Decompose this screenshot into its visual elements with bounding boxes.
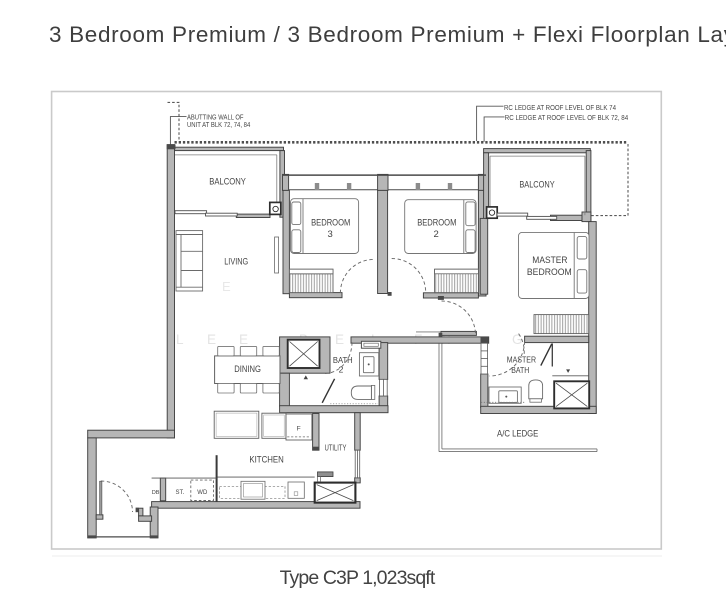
svg-text:MASTER: MASTER — [532, 255, 567, 266]
svg-text:BATH: BATH — [511, 365, 529, 375]
svg-text:E: E — [335, 332, 344, 347]
svg-text:2: 2 — [339, 365, 344, 375]
svg-text:WD: WD — [197, 490, 208, 496]
svg-text:L: L — [176, 332, 184, 347]
svg-text:F: F — [297, 425, 301, 432]
svg-text:BEDROOM: BEDROOM — [527, 267, 572, 278]
svg-text:LIVING: LIVING — [224, 256, 248, 267]
svg-text:UTILITY: UTILITY — [325, 443, 347, 453]
svg-text:E: E — [239, 332, 248, 347]
svg-text:BALCONY: BALCONY — [519, 179, 555, 190]
svg-text:MASTER: MASTER — [507, 354, 536, 364]
svg-text:E: E — [222, 279, 231, 294]
svg-text:BEDROOM: BEDROOM — [417, 218, 456, 229]
svg-text:KITCHEN: KITCHEN — [249, 454, 284, 465]
svg-text:RC LEDGE AT ROOF LEVEL OF BLK: RC LEDGE AT ROOF LEVEL OF BLK 74 — [504, 103, 616, 112]
svg-text:RC LEDGE AT ROOF LEVEL OF BLK: RC LEDGE AT ROOF LEVEL OF BLK 72, 84 — [505, 113, 628, 122]
svg-text:BEDROOM: BEDROOM — [311, 218, 350, 229]
svg-text:G: G — [512, 332, 523, 347]
svg-text:BATH: BATH — [333, 355, 353, 365]
svg-text:BALCONY: BALCONY — [209, 176, 246, 187]
svg-text:3: 3 — [328, 229, 333, 240]
svg-text:DB: DB — [152, 490, 160, 496]
svg-text:A/C LEDGE: A/C LEDGE — [497, 428, 538, 438]
svg-text:E: E — [207, 332, 216, 347]
svg-text:UNIT AT BLK 72, 74, 84: UNIT AT BLK 72, 74, 84 — [187, 120, 250, 129]
svg-text:2: 2 — [434, 229, 439, 240]
svg-text:DINING: DINING — [234, 364, 261, 375]
svg-text:ST.: ST. — [175, 490, 184, 496]
